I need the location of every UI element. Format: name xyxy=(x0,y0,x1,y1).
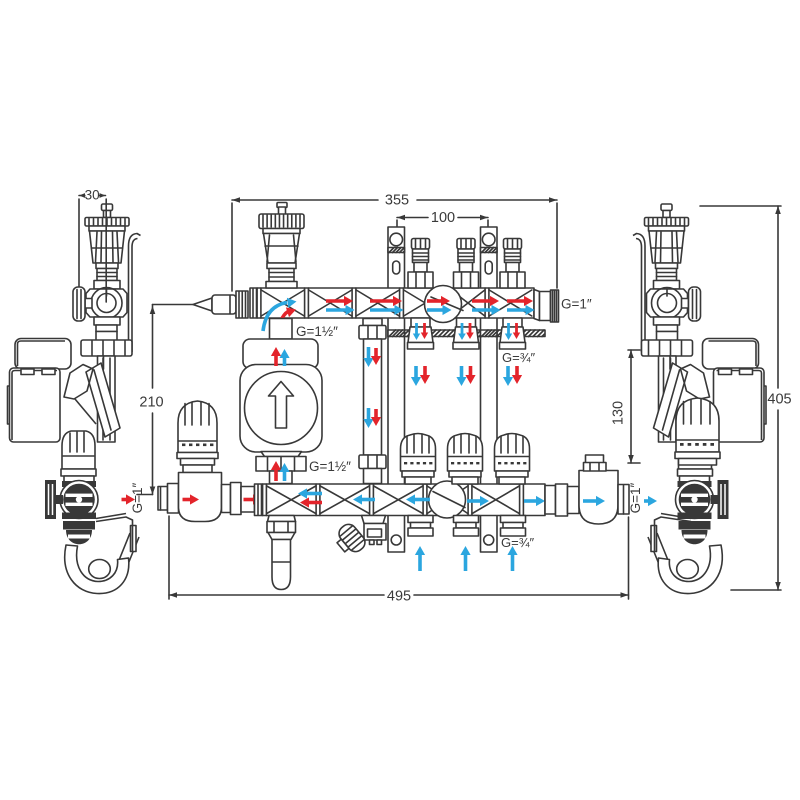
svg-text:G=1″: G=1″ xyxy=(628,482,643,513)
svg-text:G=1″: G=1″ xyxy=(561,297,592,312)
svg-text:100: 100 xyxy=(431,210,455,226)
svg-text:405: 405 xyxy=(767,392,791,408)
svg-text:G=¾″: G=¾″ xyxy=(502,350,536,365)
svg-text:G=¾″: G=¾″ xyxy=(501,535,535,550)
svg-text:30: 30 xyxy=(85,188,100,203)
svg-text:130: 130 xyxy=(611,401,627,425)
svg-text:G=1″: G=1″ xyxy=(130,482,145,513)
svg-text:210: 210 xyxy=(139,395,163,411)
svg-text:495: 495 xyxy=(387,589,411,605)
svg-text:G=1½″: G=1½″ xyxy=(296,324,338,339)
svg-text:G=1½″: G=1½″ xyxy=(309,459,351,474)
svg-text:355: 355 xyxy=(385,193,409,209)
